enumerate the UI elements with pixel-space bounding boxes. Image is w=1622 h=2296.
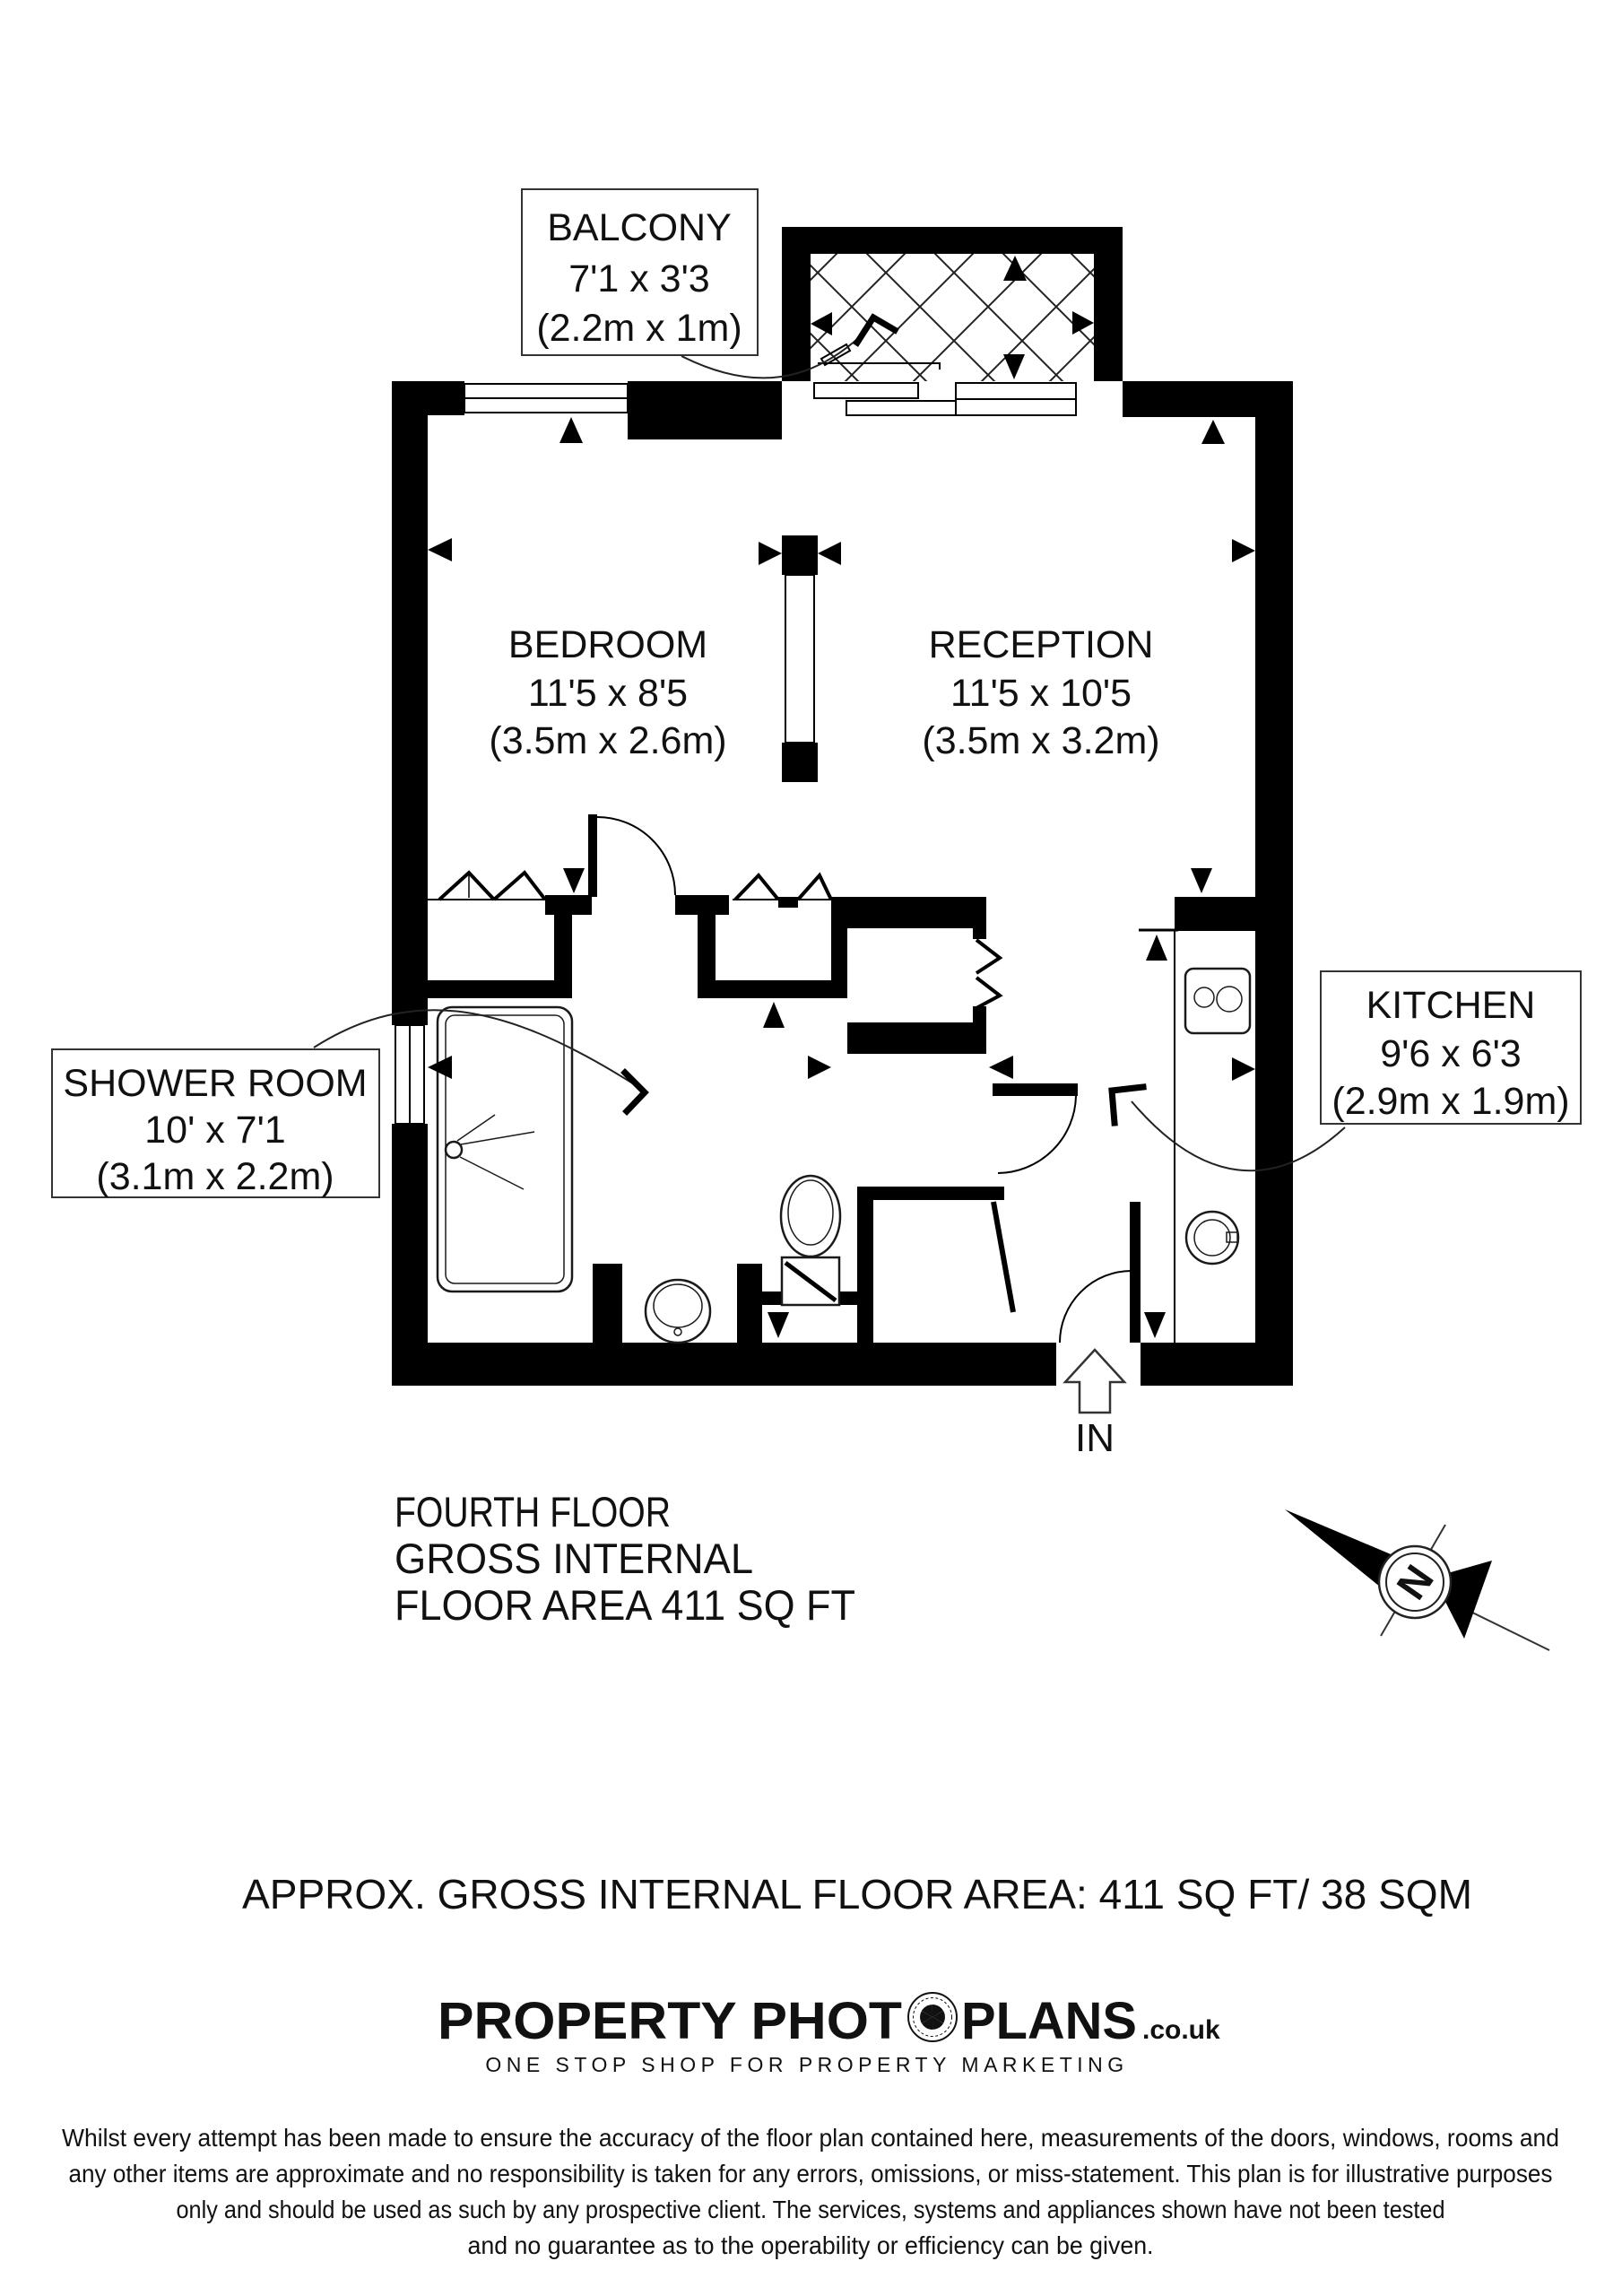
column-block-bottom xyxy=(782,743,818,782)
arrow-kitchen-up xyxy=(1146,935,1167,961)
balcony-wall-right xyxy=(1094,227,1123,381)
kitchen-label: KITCHEN 9'6 x 6'3 (2.9m x 1.9m) xyxy=(1321,971,1581,1124)
arrow-column-right xyxy=(818,542,841,565)
arrow-bedroom-left xyxy=(428,538,452,561)
wc-door-leaf xyxy=(993,1202,1013,1312)
cupboard-bottom-wall xyxy=(847,1022,986,1054)
cupboard-jamb-top xyxy=(973,928,986,939)
entrance-label: IN xyxy=(1075,1416,1115,1460)
balcony-door-windows xyxy=(814,383,1076,415)
washing-machine-icon xyxy=(1186,1212,1238,1264)
wall-right xyxy=(1255,381,1293,1386)
kitchen-metric: (2.9m x 1.9m) xyxy=(1331,1080,1569,1123)
wardrobe2-bottom-wall xyxy=(698,980,831,998)
stub-wall-basin-left xyxy=(593,1264,622,1343)
entrance-arrow-icon xyxy=(1065,1350,1124,1413)
wall-top-pillar xyxy=(628,381,782,439)
shower-dims: 10' x 7'1 xyxy=(144,1109,285,1152)
fixtures xyxy=(438,969,1250,1343)
arrow-reception-up xyxy=(1201,420,1225,444)
arrow-wc-down xyxy=(768,1312,789,1338)
wardrobe2-doors xyxy=(733,875,831,900)
reception-name: RECEPTION xyxy=(929,623,1154,666)
bedroom-dims: 11'5 x 8'5 xyxy=(528,672,688,715)
logo-part1: PROPERTY PHOT xyxy=(438,1992,902,2050)
kitchen-name: KITCHEN xyxy=(1366,984,1536,1027)
compass-icon: N xyxy=(1285,1509,1549,1650)
wardrobe1-doors xyxy=(428,873,545,900)
area-summary: APPROX. GROSS INTERNAL FLOOR AREA: 411 S… xyxy=(242,1871,1472,1918)
window-left-wall xyxy=(395,1025,424,1124)
arrow-hall-left xyxy=(989,1056,1013,1079)
wall-bottom-left xyxy=(392,1343,1056,1386)
arrow-bedroom-down xyxy=(563,868,585,893)
cupboard-bifold-doors xyxy=(976,940,1000,1008)
disclaimer-line4: and no guarantee as to the operability o… xyxy=(468,2231,1154,2259)
arrow-hall-up xyxy=(763,1002,785,1028)
cupboard-jamb-bottom xyxy=(973,1006,986,1022)
window-top-wall xyxy=(464,384,628,413)
washbasin-icon xyxy=(646,1280,710,1343)
floor-plan-page: BALCONY 7'1 x 3'3 (2.2m x 1m) BEDROOM 11… xyxy=(0,0,1622,2296)
floor-summary-line1: FOURTH FLOOR xyxy=(395,1488,671,1535)
arrow-reception-right xyxy=(1232,539,1255,562)
shower-tray-icon xyxy=(438,1007,572,1291)
shower-name: SHOWER ROOM xyxy=(63,1062,367,1105)
footer: APPROX. GROSS INTERNAL FLOOR AREA: 411 S… xyxy=(62,1871,1559,2259)
kitchen-dims: 9'6 x 6'3 xyxy=(1380,1032,1521,1075)
bedroom-metric: (3.5m x 2.6m) xyxy=(489,719,726,762)
arrow-bedroom-up xyxy=(559,417,583,443)
balcony-dims: 7'1 x 3'3 xyxy=(568,257,709,300)
wall-top-left xyxy=(392,381,464,415)
reception-dims: 11'5 x 10'5 xyxy=(950,672,1132,715)
brand-logo: PROPERTY PHOT PLANS .co.uk ONE STOP SHOP… xyxy=(438,1992,1220,2076)
floor-summary-line2: GROSS INTERNAL xyxy=(395,1535,753,1582)
wardrobe1-bottom-wall xyxy=(392,980,572,998)
hall-jamb-wall xyxy=(831,897,847,998)
arrow-entry-down xyxy=(1144,1312,1166,1338)
kitchen-leader-arrow xyxy=(1112,1087,1143,1123)
floor-summary-line3: FLOOR AREA 411 SQ FT xyxy=(395,1581,855,1629)
wc-nook-wall-horiz xyxy=(857,1187,1004,1200)
partition-bedroom-b xyxy=(675,895,729,915)
wall-bottom-right xyxy=(1141,1343,1293,1386)
cupboard-top-wall xyxy=(847,897,986,928)
reception-metric: (3.5m x 3.2m) xyxy=(922,719,1159,762)
column-shaft xyxy=(785,575,814,743)
wall-left-upper xyxy=(392,381,428,1025)
kitchen-top-wall xyxy=(1175,897,1255,931)
wardrobe2-jamb xyxy=(778,897,798,908)
balcony-metric: (2.2m x 1m) xyxy=(536,307,742,350)
arrow-column-left xyxy=(759,542,782,565)
reception-label: RECEPTION 11'5 x 10'5 (3.5m x 3.2m) xyxy=(922,623,1159,762)
kitchen-leader xyxy=(1132,1101,1345,1170)
camera-aperture-icon xyxy=(908,1993,957,2041)
bedroom-name: BEDROOM xyxy=(508,623,707,666)
disclaimer-line2: any other items are approximate and no r… xyxy=(69,2160,1553,2187)
wc-nook-wall-vert xyxy=(857,1187,873,1343)
shower-leader-arrow xyxy=(625,1073,645,1111)
balcony-wall-top xyxy=(782,227,1123,254)
arrow-kitchen-right xyxy=(1232,1057,1255,1081)
entrance-door xyxy=(1060,1202,1141,1343)
toilet-icon xyxy=(781,1176,840,1305)
logo-tagline: ONE STOP SHOP FOR PROPERTY MARKETING xyxy=(485,2053,1128,2076)
bedroom-door xyxy=(588,814,675,897)
hall-door xyxy=(993,1083,1078,1173)
disclaimer-line3: only and should be used as such by any p… xyxy=(177,2196,1445,2223)
balcony-floor xyxy=(811,254,1094,381)
entrance: IN xyxy=(1065,1350,1124,1460)
hob-icon xyxy=(1185,969,1250,1033)
disclaimer: Whilst every attempt has been made to en… xyxy=(62,2124,1559,2259)
column-block-top xyxy=(782,535,818,575)
arrow-reception-down xyxy=(1191,868,1212,893)
disclaimer-line1: Whilst every attempt has been made to en… xyxy=(62,2124,1559,2152)
shower-metric: (3.1m x 2.2m) xyxy=(96,1155,334,1198)
logo-suffix: .co.uk xyxy=(1142,2015,1220,2045)
balcony-label: BALCONY 7'1 x 3'3 (2.2m x 1m) xyxy=(522,189,758,355)
floor-summary: FOURTH FLOOR GROSS INTERNAL FLOOR AREA 4… xyxy=(395,1488,855,1629)
balcony-name: BALCONY xyxy=(547,206,732,249)
logo-part2: PLANS xyxy=(961,1992,1137,2050)
arrow-hall-right xyxy=(808,1056,831,1079)
stub-wall-basin-right xyxy=(737,1264,762,1343)
shower-room-label: SHOWER ROOM 10' x 7'1 (3.1m x 2.2m) xyxy=(52,1049,379,1198)
bedroom-label: BEDROOM 11'5 x 8'5 (3.5m x 2.6m) xyxy=(489,623,726,762)
